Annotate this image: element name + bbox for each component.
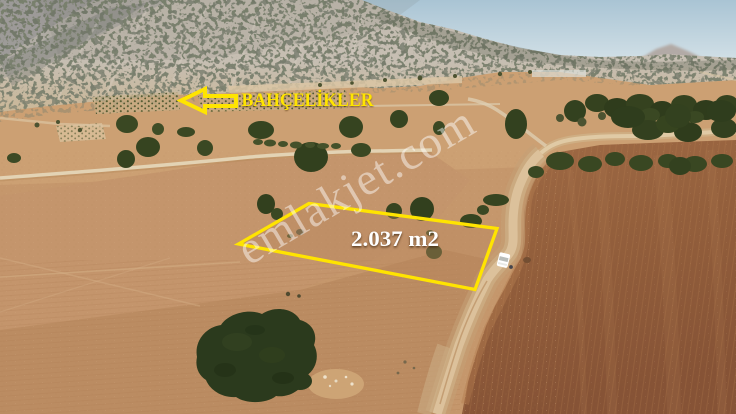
svg-text:BAHÇELİKLER: BAHÇELİKLER — [242, 90, 374, 111]
svg-text:2.037 m2: 2.037 m2 — [351, 226, 439, 251]
